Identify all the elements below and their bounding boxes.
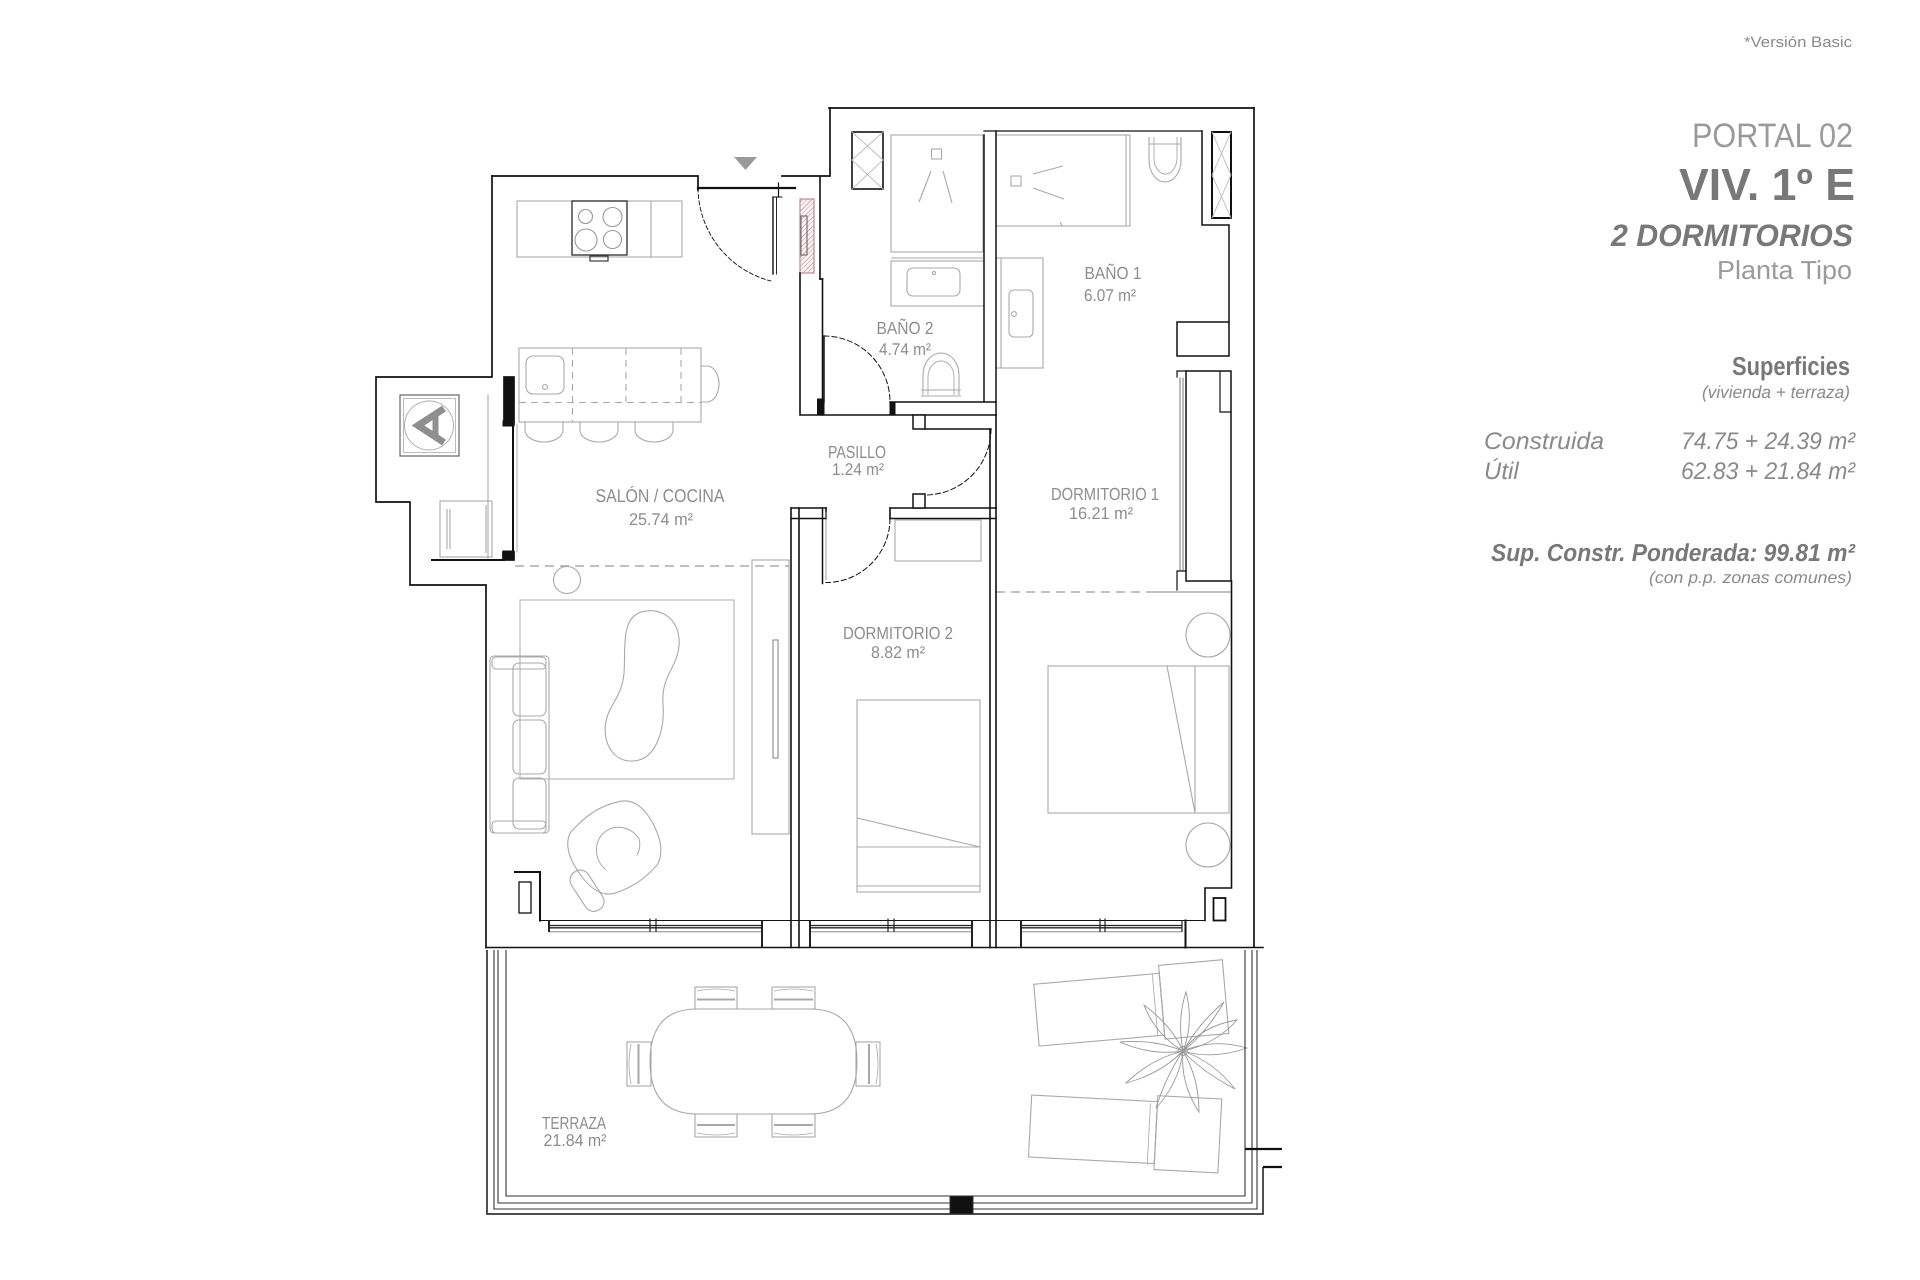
svg-text:62.83 + 21.84 m²: 62.83 + 21.84 m² — [1681, 458, 1856, 485]
svg-text:VIV. 1º E: VIV. 1º E — [1679, 159, 1855, 210]
svg-text:8.82 m²: 8.82 m² — [871, 643, 925, 662]
svg-text:DORMITORIO 2: DORMITORIO 2 — [843, 623, 953, 643]
svg-text:(vivienda + terraza): (vivienda + terraza) — [1702, 382, 1850, 402]
svg-text:4.74 m²: 4.74 m² — [879, 340, 931, 359]
svg-text:25.74 m²: 25.74 m² — [629, 510, 693, 529]
svg-text:Superficies: Superficies — [1732, 351, 1850, 381]
svg-text:Planta Tipo: Planta Tipo — [1717, 255, 1852, 285]
svg-text:BAÑO 2: BAÑO 2 — [877, 318, 934, 338]
svg-text:PASILLO: PASILLO — [828, 442, 886, 462]
svg-text:Construida: Construida — [1484, 428, 1604, 455]
svg-text:74.75 + 24.39 m²: 74.75 + 24.39 m² — [1681, 428, 1856, 455]
svg-text:16.21 m²: 16.21 m² — [1069, 504, 1133, 523]
svg-text:DORMITORIO 1: DORMITORIO 1 — [1051, 484, 1159, 504]
svg-text:2 DORMITORIOS: 2 DORMITORIOS — [1610, 218, 1853, 253]
svg-text:Útil: Útil — [1484, 458, 1519, 485]
svg-text:1.24 m²: 1.24 m² — [832, 460, 884, 479]
svg-text:(con p.p. zonas comunes): (con p.p. zonas comunes) — [1649, 569, 1852, 587]
svg-text:SALÓN / COCINA: SALÓN / COCINA — [596, 485, 726, 506]
svg-text:Sup. Constr. Ponderada: 99.81: Sup. Constr. Ponderada: 99.81 m² — [1491, 540, 1856, 567]
svg-text:*Versión Basic: *Versión Basic — [1744, 34, 1853, 51]
svg-text:21.84 m²: 21.84 m² — [544, 1131, 607, 1150]
svg-text:PORTAL 02: PORTAL 02 — [1692, 117, 1853, 155]
svg-text:BAÑO 1: BAÑO 1 — [1085, 263, 1142, 283]
svg-text:6.07 m²: 6.07 m² — [1084, 286, 1136, 305]
svg-text:TERRAZA: TERRAZA — [542, 1113, 606, 1133]
